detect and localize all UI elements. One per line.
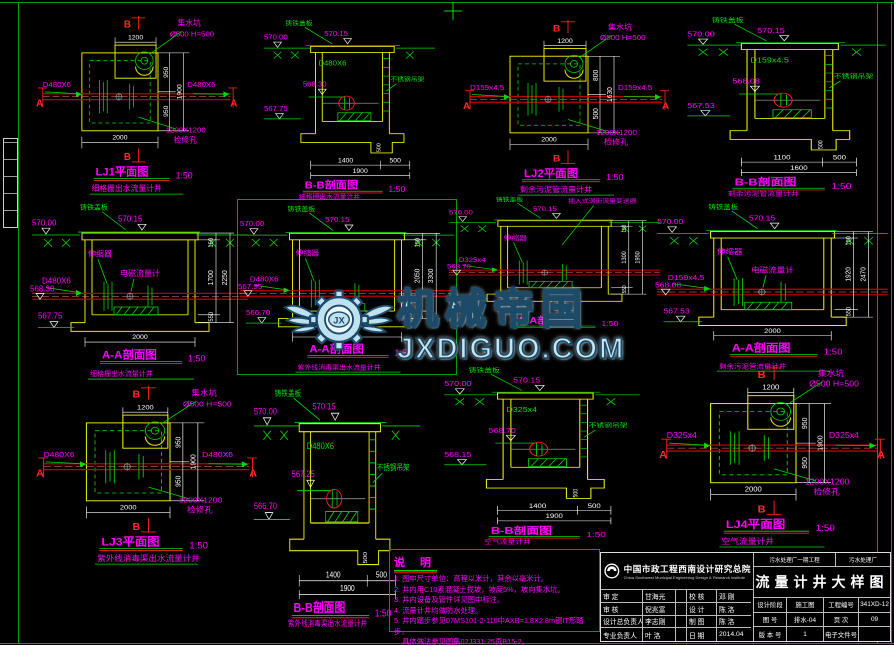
sump-label: 集水坑: [608, 22, 632, 32]
pipe-label-right: D159x4.5: [618, 83, 653, 92]
dimension: 950: [800, 457, 809, 469]
field-value: 陈 洛: [717, 616, 751, 629]
elevation: 567.75: [264, 104, 288, 113]
dimension: 500: [363, 551, 369, 563]
company-name-en: China Southwest Municipal Engineering De…: [624, 575, 751, 580]
section-marker-b: B: [758, 505, 766, 515]
elevation: 567.25: [292, 468, 315, 479]
dimension: 150: [846, 236, 852, 246]
field-label: 图 号: [754, 613, 787, 628]
sump-spec: Ø500 H=500: [600, 33, 646, 42]
notes-block: 说 明 1. 图中尺寸单位：高程以米计，其余以毫米计。 2. 井内用C10素混凝…: [389, 549, 600, 632]
well-outline: [86, 423, 170, 501]
pipe-label-right: D325x4: [829, 431, 860, 440]
sump-label: 集水坑: [191, 388, 217, 398]
pipe-label: D480X6: [318, 59, 346, 68]
panel-title: B-B剖面图: [491, 524, 552, 536]
dimension: 2000: [745, 485, 762, 494]
panel-title: A-A剖面图: [102, 348, 157, 362]
panel-title: B-B剖面图: [735, 176, 797, 188]
company-name: 中国市政工程西南设计研究总院: [624, 563, 751, 575]
panel-title: LJ1平面图: [96, 166, 149, 179]
cover-label: 铸铁盖板: [496, 196, 524, 203]
meter-label: 电磁流量计: [751, 265, 794, 274]
field-label: 日 期: [687, 628, 717, 641]
panel-subtitle: 空气流量计井: [484, 538, 531, 545]
dimension: 1300: [620, 251, 628, 264]
dimension: 1950: [634, 251, 642, 264]
bracket-label: 不锈钢吊架: [834, 72, 873, 80]
watermark-text-cn: 机械帝国: [397, 275, 625, 335]
sump-spec: Ø500 H=500: [809, 379, 859, 388]
field-value: 2014.04: [717, 628, 751, 641]
dimension: 500: [390, 158, 402, 165]
dimension: 2000: [112, 135, 127, 142]
bracket-label: 不锈钢吊架: [589, 422, 628, 430]
panel-title: LJ3平面图: [101, 535, 159, 548]
panel-lj3-plan: B 1200 集水坑 Ø500 H=500 D480X6 D480X6 A: [35, 382, 260, 567]
section-marker-b: B: [133, 522, 141, 532]
field-label: 专业负责人: [601, 628, 643, 641]
sump-label: 集水坑: [178, 18, 202, 28]
elevation: 568.30: [303, 80, 327, 89]
dimension: 950: [163, 66, 170, 78]
elevation: 570.15: [312, 401, 335, 412]
pipe-label-left: D480X6: [44, 450, 75, 459]
frame-right-outer: [891, 2, 892, 644]
hatch-size: 1200X1200: [805, 477, 850, 486]
elevation: 570.15: [757, 27, 785, 35]
elevation: 570.15: [533, 206, 557, 213]
elevation: 570.00: [449, 209, 473, 216]
cover-label: 铸铁盖板: [712, 16, 744, 24]
pipe-label-right: D480X6: [202, 450, 233, 459]
dimension: 1700: [208, 270, 215, 285]
section-marker-a: A: [230, 98, 237, 109]
field-label: 设 计: [687, 603, 717, 616]
dimension: 150: [621, 225, 628, 233]
dimension: 500: [833, 155, 846, 161]
dimension: 1400: [529, 504, 546, 510]
cover-label: 铸铁盖板: [708, 203, 738, 211]
dimension: 500: [593, 108, 600, 119]
elevation: 570.15: [118, 214, 143, 223]
hatch-size: 1200X1200: [179, 496, 223, 505]
pipe-label-left: D159x4.5: [470, 83, 505, 92]
note-item: 具体做法参见图集02J331-25页B15-2。: [394, 637, 595, 645]
hatch-label: 检修孔: [187, 505, 213, 515]
dimension: 950: [174, 437, 182, 448]
field-label: 页 次: [824, 613, 859, 628]
hatch-label: 检修孔: [604, 137, 628, 147]
section-marker-b: B: [553, 24, 560, 35]
dimension: 1900: [546, 514, 563, 520]
dimension: 1900: [353, 168, 369, 175]
watermark: JX 机械帝国 JXDIGUO.COM: [283, 268, 633, 372]
panel-scale: 1:50: [188, 354, 206, 364]
bracket-label: 不锈钢吊架: [377, 462, 411, 472]
dimension: 1400: [326, 570, 341, 580]
hatch-size: 1200X1200: [596, 128, 638, 137]
panel-title: A-A剖面图: [732, 341, 791, 354]
well-outline: [82, 53, 158, 131]
dimension: 1600: [790, 166, 808, 172]
dimension: 500: [818, 140, 825, 149]
dimension: 150: [209, 237, 215, 247]
expansion-joint-label: 伸缩器: [717, 246, 743, 255]
field-label: 电子文件号: [824, 627, 859, 641]
elevation: 567.53: [664, 307, 691, 315]
elevation: 570.00: [264, 33, 288, 42]
field-label: 制 图: [687, 616, 717, 629]
dimension: 1630: [607, 87, 614, 102]
elevation: 566.70: [254, 500, 277, 511]
pipe-label-left: D480X6: [43, 80, 71, 89]
well-outline: [711, 404, 796, 483]
field-value: 李志刚: [643, 616, 676, 629]
field-value: 甘海光: [643, 590, 676, 603]
frame-left: [18, 2, 19, 644]
field-value: 09: [859, 613, 890, 628]
elevation: 568.08: [732, 77, 760, 85]
title-block: 中国市政工程西南设计研究总院 China Southwest Municipal…: [600, 552, 891, 642]
field-value: 陈 洛: [717, 603, 751, 616]
expansion-joint-label: 伸缩器: [88, 249, 112, 259]
dimension: 1200: [128, 34, 143, 41]
field-label: 审 定: [601, 590, 643, 603]
dimension: 950: [800, 418, 809, 430]
registration-cross: [444, 2, 462, 20]
meta-table: 设计阶段 施工图 工程编号 341XD-12 图 号 排水-04 页 次 09 …: [754, 598, 890, 641]
field-label: 设计阶段: [754, 598, 787, 613]
drawing-title: 流量计井大样图: [754, 567, 890, 598]
dimension: 1900: [815, 435, 824, 450]
panel-title: B-B剖面图: [294, 599, 346, 615]
elevation: 568.70: [489, 427, 517, 435]
elevation: 570.00: [240, 219, 264, 228]
section-marker-b: B: [758, 370, 766, 380]
panel-subtitle: 紫外线消毒渠出水流量计井: [288, 618, 367, 627]
elevation: 570.15: [513, 377, 541, 385]
hatch-label: 检修孔: [174, 134, 198, 144]
field-value: 邓 刚: [717, 590, 751, 603]
note-item: 4. 流量计井均做防水处理。: [394, 606, 595, 617]
panel-scale: 1:50: [189, 541, 208, 551]
field-value: 叶 洛: [643, 628, 676, 641]
elevation: 567.53: [687, 102, 715, 110]
panel-scale: 1:50: [586, 530, 605, 539]
field-label: 版 本 号: [754, 627, 787, 641]
dimension: 500: [376, 570, 387, 580]
pipe-label: D159x4.5: [750, 57, 789, 65]
cover-label: 铸铁盖板: [288, 204, 316, 213]
dimension: 550: [846, 306, 852, 316]
elevation: 568.30: [30, 285, 55, 294]
section-marker-a: A: [877, 450, 885, 460]
dimension: 500: [376, 143, 382, 152]
elevation: 570.15: [325, 215, 349, 224]
dimension: 1920: [845, 267, 852, 282]
panel-aa-section-4: 铸铁盖板 570.00 570.15 伸缩器 电磁流量计 D159x4.5: [655, 198, 890, 373]
elevation: 570.00: [444, 380, 472, 388]
field-value: 排水-04: [787, 613, 824, 628]
field-value: [859, 627, 890, 641]
note-item: 1. 图中尺寸单位：高程以米计，其余以毫米计。: [394, 574, 595, 585]
svg-text:JX: JX: [333, 315, 345, 325]
panel-scale: 1:50: [832, 182, 852, 191]
note-item: 3. 井内设备及管件详见图中标注。: [394, 595, 595, 606]
dimension: 2250: [222, 270, 229, 285]
pipe-label: D325x4: [506, 406, 537, 414]
panel-subtitle: 空气流量计井: [722, 536, 774, 545]
elevation: 570.15: [324, 29, 348, 38]
note-item: 5. 井内踏步参见07MS101-2-110中AXB=1.8X2.8m钢IT形踏…: [394, 616, 595, 637]
dimension: 500: [573, 488, 580, 497]
panel-lj4-plan: B 1200 集水坑 Ø500 H=500 D325x4 D325x4 A: [658, 362, 888, 550]
elevation: 570.00: [687, 30, 715, 38]
panel-title: LJ4平面图: [726, 518, 785, 531]
dimension: 1200: [557, 38, 573, 45]
elevation: 567.95: [238, 282, 262, 291]
section-marker-b: B: [133, 390, 141, 400]
project-name: 污水处理厂一期工程: [754, 553, 836, 566]
note-item: 2. 井内用C10素混凝土找坡，坡度5%，坡向集水坑。: [394, 585, 595, 596]
section-marker-b: B: [553, 154, 560, 165]
panel-subtitle: 剩余污泥管流量计井: [728, 190, 799, 197]
elevation: 568.08: [655, 281, 682, 289]
approval-table: 审 定 甘海光 校 核 邓 刚 审 核 倪兆富 设 计 陈 洛 设计总负责人 李…: [601, 590, 753, 641]
section-marker-a: A: [659, 450, 667, 460]
panel-lj2-plan: B 1200 集水坑 Ø500 H=500 D159x4.5 D159x4.5: [462, 16, 672, 198]
expansion-joint-label: 伸缩器: [295, 248, 319, 258]
field-value: 1: [787, 627, 824, 641]
hatch-label: 检修孔: [814, 487, 841, 496]
dimension: 950: [163, 105, 170, 117]
elevation: 566.70: [246, 308, 270, 317]
pipe-label-right: D480X6: [187, 80, 215, 89]
panel-title: B-B剖面图: [305, 179, 358, 191]
pipe-label-left: D325x4: [667, 431, 698, 440]
dimension: 950: [174, 476, 182, 487]
field-label: 校 核: [687, 590, 717, 603]
section-marker-a: A: [662, 101, 669, 112]
company-logo: [603, 558, 621, 584]
dimension: 1900: [340, 584, 355, 594]
dimension: 800: [593, 70, 600, 81]
plant-name: 污水处理厂: [836, 553, 890, 566]
notes-title: 说 明: [394, 554, 437, 571]
sump-spec: Ø500 H=500: [183, 400, 232, 409]
section-marker-a: A: [36, 98, 43, 109]
meter-label: 电磁流量计: [120, 268, 160, 278]
dimension: 2000: [541, 137, 557, 144]
elevation: 567.75: [38, 312, 63, 321]
panel-subtitle: 细格栅出水流量计井: [90, 369, 153, 378]
elevation: 570.00: [657, 218, 684, 226]
field-value: 倪兆富: [643, 603, 676, 616]
dimension: 2000: [132, 334, 148, 341]
panel-scale: 1:50: [176, 171, 193, 181]
section-marker-b: B: [124, 152, 131, 163]
panel-aa-section-1: 铸铁盖板 570.00 570.15 伸缩器 电磁流量计 D480X6: [30, 198, 250, 381]
panel-subtitle: 紫外线消毒渠出水流量计井: [97, 554, 200, 564]
elevation: 568.15: [444, 451, 472, 459]
panel-lj1-plan: B 1200 集水坑 Ø500 H=500 D480X6 D480X6 A: [35, 12, 240, 197]
dimension: 1200: [762, 383, 779, 392]
dimension: 1200: [137, 404, 154, 412]
hatch-size: 1200X1200: [166, 126, 207, 135]
field-value: 341XD-12: [859, 598, 890, 613]
sump-label: 集水坑: [818, 368, 844, 377]
expansion-joint-label: 伸缩器: [504, 234, 527, 242]
dimension: 2000: [120, 504, 137, 512]
panel-bb-section-4: 铸铁盖板 570.00 570.15 D325x4 568.70 568.15 …: [442, 362, 642, 545]
panel-scale: 1:50: [824, 347, 843, 356]
elevation: 570.15: [749, 214, 776, 222]
dimension: 1900: [189, 454, 197, 469]
vortex-meter-label: 插入式涡街流量变送器: [568, 198, 637, 205]
bracket-label: 不锈钢吊架: [390, 75, 425, 84]
field-label: 审 核: [601, 603, 643, 616]
dimension: 2000: [764, 328, 781, 335]
field-value: 施工图: [787, 598, 824, 613]
dimension: 2470: [860, 267, 867, 282]
panel-scale: 1:50: [606, 172, 624, 182]
cad-drawing-sheet: B 1200 集水坑 Ø500 H=500 D480X6 D480X6 A: [0, 0, 894, 645]
panel-title: LJ2平面图: [524, 167, 578, 180]
well-outline: [510, 56, 588, 133]
dimension: 1400: [338, 158, 354, 165]
section-marker-a: A: [463, 101, 470, 112]
dimension: 500: [588, 504, 601, 510]
panel-subtitle: 细格栅出水流量计井: [92, 183, 162, 193]
field-label: 工程编号: [824, 598, 859, 613]
dimension: 550: [209, 311, 215, 321]
pipe-label: D480X6: [307, 440, 335, 451]
cover-label: 铸铁盖板: [80, 203, 108, 212]
cover-label: 铸铁盖板: [275, 388, 302, 398]
dimension: 1900: [176, 84, 183, 99]
watermark-text-en: JXDIGUO.COM: [397, 333, 625, 366]
panel-bb-section-1: 铸铁盖板 570.00 570.15 D480X6 568.30 567.75 …: [262, 15, 437, 200]
signature-strip: [3, 138, 18, 228]
field-label: 设计总负责人: [601, 616, 643, 629]
sump-spec: Ø500 H=500: [170, 29, 215, 38]
dimension: 150: [415, 238, 421, 247]
section-marker-b: B: [124, 20, 131, 31]
cover-label: 铸铁盖板: [285, 19, 313, 28]
panel-scale: 1:50: [816, 523, 835, 533]
panel-bb-section-2: 铸铁盖板 570.00 570.15 D159x4.5 568.08 567.5…: [685, 12, 888, 197]
panel-scale: 1:50: [388, 185, 405, 194]
elevation: 570.00: [32, 218, 57, 227]
elevation: 570.00: [254, 406, 277, 417]
dimension: 1100: [774, 155, 791, 161]
watermark-winged-gear-logo: JX: [283, 274, 395, 366]
